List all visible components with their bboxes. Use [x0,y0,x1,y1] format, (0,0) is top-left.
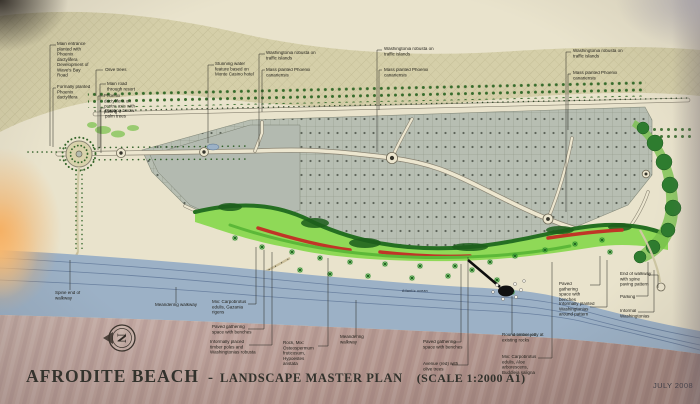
annotation-washingtonia-1: Washingtonia robusta on traffic islands [266,51,319,62]
sheet-subtitle: LANDSCAPE MASTER PLAN [220,371,403,385]
svg-text:N: N [115,333,130,343]
annotation-main-road: Main road through resort [107,82,141,93]
annotation-washingtonia-3: Washingtonia robusta on traffic islands [573,49,626,60]
title-block: AFRODITE BEACH-LANDSCAPE MASTER PLAN(SCA… [26,366,526,387]
annotation-washingtonia-2: Washingtonia robusta on traffic islands [384,47,437,58]
annotation-round-jetty: Round timber jetty at existing rocks [502,333,546,344]
annotation-parking: Parking [620,295,650,300]
annotation-informal-washingtonias: Informal Washingtonias [620,309,654,320]
annotation-mass-phoenix-2: Mass planted Phoenix canariensis [384,68,431,79]
annotation-formal-phoenix: Formally planted Phoenix dactylifera [57,85,95,101]
master-plan-sheet: N Main entrance planted with Phoenix dac… [0,0,700,404]
annotation-meandering-1: Meandering walkway [155,303,215,308]
annotation-main-entrance: Main entrance planted with Phoenix dacty… [57,42,92,79]
annotation-rock-mix: Rock, Mix: Osteospermum fruticosum, Hypo… [283,341,319,368]
annotation-paved-2: Paved gathering space with benches [423,340,467,351]
annotation-end-walkway: End of walkway with spine paving pattern [620,272,653,288]
annotation-olive-trees: Olive trees [105,68,145,73]
sheet-scale: (SCALE 1:2000 A1) [417,371,526,385]
annotation-spine-end: Spine end of walkway [55,291,89,302]
atlantic-ocean-label: Atlantic ocean [402,290,428,294]
annotation-meandering-2: Meandering walkway [340,335,372,346]
annotation-washingtonias-around: Informally planted Washingtonias around … [559,302,595,318]
annotation-mass-phoenix-3: Mass planted Phoenix canariensis [573,71,620,82]
annotation-mass-phoenix-1: Mass planted Phoenix canariensis [266,68,313,79]
sheet-title: AFRODITE BEACH [26,366,199,386]
title-separator: - [208,370,213,386]
annotation-mix-gazania: Mix: Carpobrotus edulis, Gazania rigens [212,300,253,316]
date-stamp: JULY 2008 [653,381,693,390]
annotation-water-feature: Stunning water feature based on Monte Ca… [215,62,260,78]
annotation-paved-3: Paved gathering space with benches [559,282,589,303]
annotation-paved-1: Paved gathering space with benches [212,325,256,336]
water-feature [207,144,219,150]
annotation-planting-palms: Planting below palm trees [105,109,138,120]
annotation-timber-poles: Informally placed timber poles and Washi… [210,340,257,356]
